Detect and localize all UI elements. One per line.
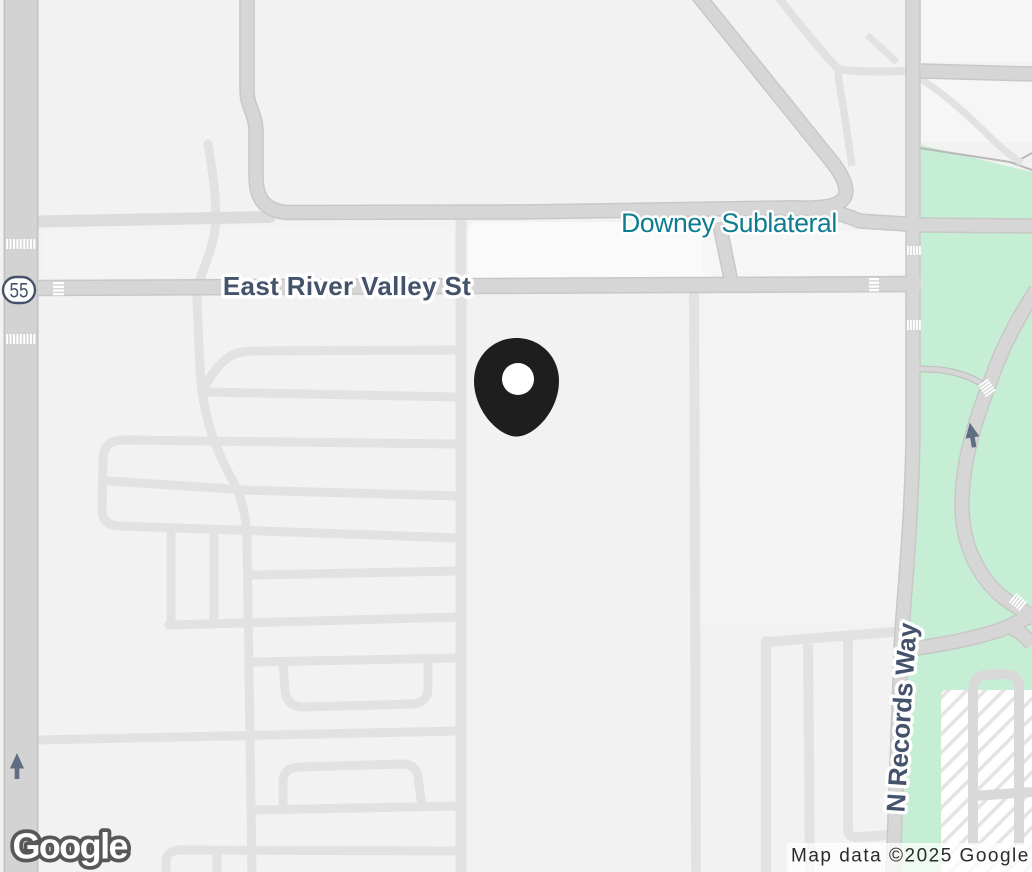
- svg-text:Google: Google: [13, 826, 128, 867]
- svg-text:Downey Sublateral: Downey Sublateral: [621, 208, 837, 238]
- svg-text:East River Valley St: East River Valley St: [223, 271, 471, 301]
- svg-text:Map data ©2025 Google: Map data ©2025 Google: [791, 846, 1030, 867]
- svg-text:55: 55: [10, 280, 29, 303]
